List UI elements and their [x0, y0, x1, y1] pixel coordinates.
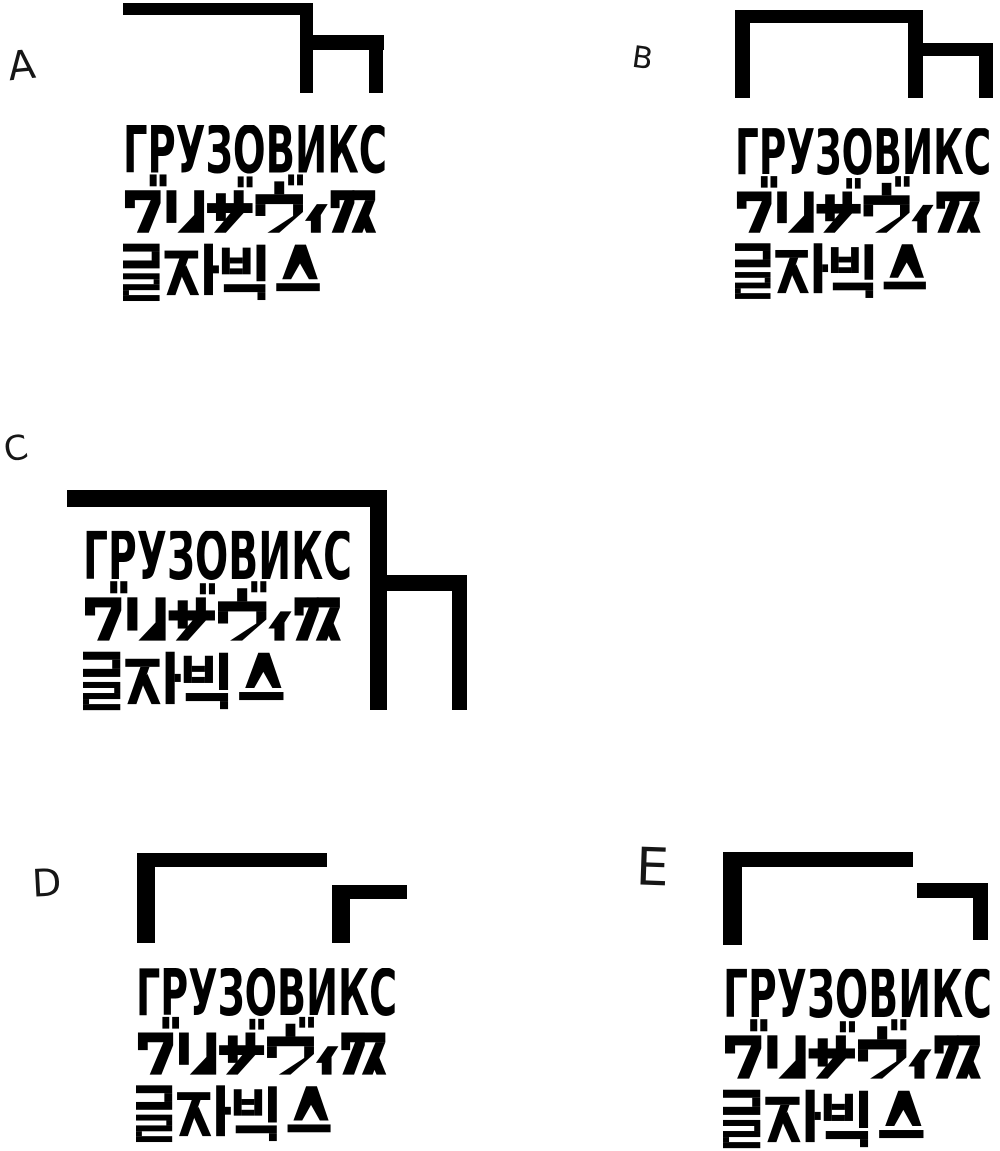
variant-e-label: E	[635, 841, 670, 894]
logo-variant-e: E	[0, 0, 1000, 1148]
e-cab-right-leg	[973, 898, 988, 940]
e-trailer-top-bar	[723, 852, 913, 867]
logo-proof-sheet: A B C D E	[0, 0, 1000, 1148]
e-cab-top-bar	[917, 883, 988, 898]
wordmark	[723, 968, 995, 1151]
